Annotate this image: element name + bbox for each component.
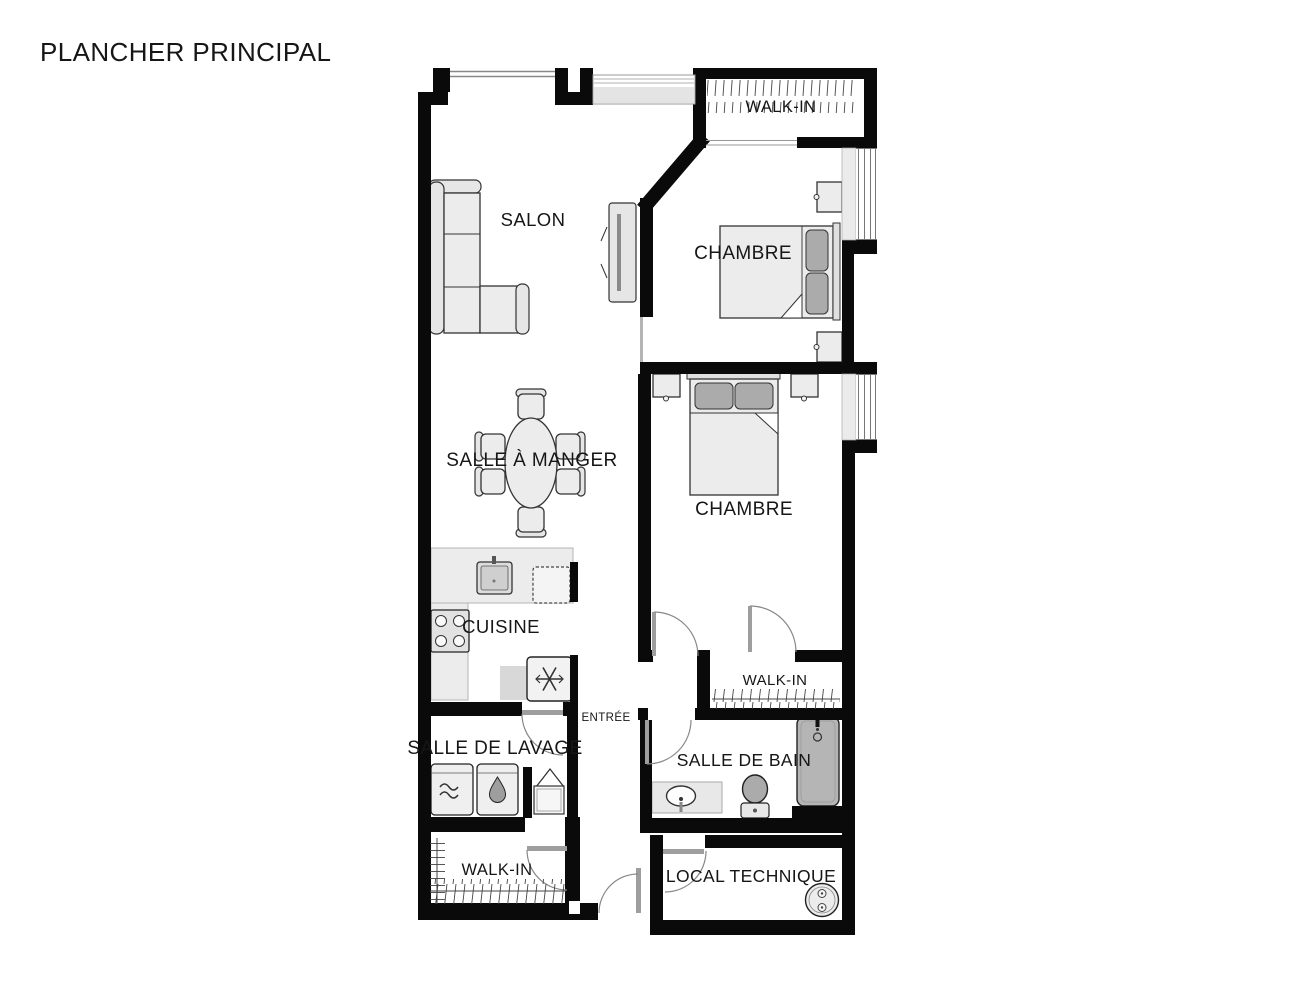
toilet-icon: [741, 775, 769, 818]
pillow: [806, 273, 828, 314]
room-label-salon: SALON: [501, 209, 566, 230]
walk-in-top-threshold: [706, 141, 797, 146]
floor-plan-page: PLANCHER PRINCIPAL SALON WALK-IN CHAMBRE…: [0, 0, 1295, 1000]
dryer-drop-icon: [477, 764, 518, 815]
water-heater-icon: [806, 884, 839, 917]
room-label-walk-in-hall: WALK-IN: [743, 672, 808, 689]
patio-door-band: [593, 75, 695, 104]
pillow: [735, 383, 773, 409]
room-label-cuisine: CUISINE: [462, 616, 540, 637]
room-label-entree: ENTRÉE: [581, 711, 630, 724]
door-chambre-2: [652, 612, 698, 656]
room-label-salle-de-bain: SALLE DE BAIN: [677, 750, 812, 770]
diagonal-wall: [647, 142, 700, 204]
door-entree: [599, 868, 641, 913]
washer-wave-icon: [431, 764, 473, 815]
bed-chambre-1: [720, 223, 840, 320]
page-title: PLANCHER PRINCIPAL: [40, 37, 331, 67]
dishwasher-icon: [533, 567, 570, 603]
window-chambre-1-right: [842, 148, 877, 240]
opening-chambre-1: [640, 317, 643, 362]
floor-plan-drawing: PLANCHER PRINCIPAL SALON WALK-IN CHAMBRE…: [0, 0, 1295, 1000]
window-salon-top: [450, 72, 555, 77]
fridge-snowflake-icon: [527, 657, 572, 701]
pillow: [695, 383, 733, 409]
room-label-chambre-1: CHAMBRE: [694, 243, 792, 264]
room-label-walk-in-top: WALK-IN: [746, 98, 817, 116]
window-chambre-2-right: [842, 374, 877, 440]
room-label-walk-in-laundry: WALK-IN: [462, 861, 533, 879]
room-label-chambre-2: CHAMBRE: [695, 499, 793, 520]
room-label-local-technique: LOCAL TECHNIQUE: [666, 866, 836, 886]
bed-chambre-2: [687, 370, 780, 495]
room-label-salle-a-manger: SALLE À MANGER: [446, 450, 617, 471]
room-label-salle-de-lavage: SALLE DE LAVAGE: [407, 738, 582, 759]
vanity-sink-icon: [652, 782, 722, 813]
tv-icon: [601, 203, 636, 302]
sectional-sofa-icon: [429, 180, 529, 334]
pillow: [806, 230, 828, 271]
closet-chevron-icon: [534, 769, 564, 814]
door-walk-in-hall: [748, 606, 796, 652]
kitchen-sink-icon: [477, 556, 512, 594]
